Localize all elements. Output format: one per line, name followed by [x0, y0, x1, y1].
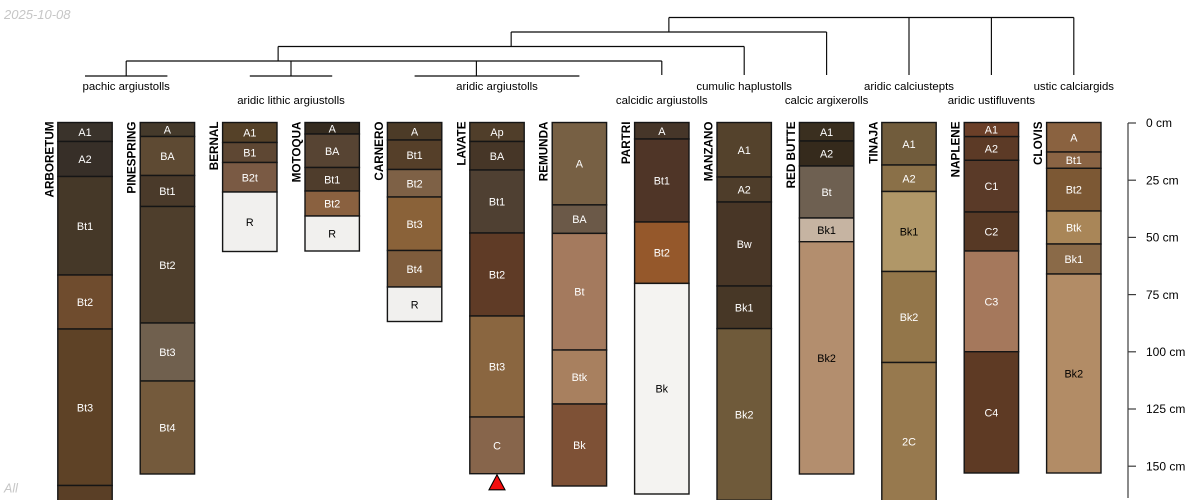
- svg-text:aridic ustifluvents: aridic ustifluvents: [948, 95, 1036, 107]
- svg-text:Bt1: Bt1: [406, 150, 422, 162]
- svg-text:LAVATE: LAVATE: [455, 121, 468, 165]
- svg-text:Bt3: Bt3: [406, 219, 422, 231]
- svg-text:A2: A2: [985, 143, 998, 155]
- svg-text:A2: A2: [902, 173, 915, 185]
- svg-text:MANZANO: MANZANO: [703, 122, 716, 182]
- svg-text:BERNAL: BERNAL: [208, 122, 221, 171]
- svg-text:Bk1: Bk1: [735, 302, 754, 314]
- svg-text:BA: BA: [325, 146, 340, 158]
- svg-text:A: A: [576, 159, 584, 171]
- svg-text:150 cm: 150 cm: [1146, 459, 1185, 473]
- svg-text:Bt1: Bt1: [77, 221, 93, 233]
- svg-text:A: A: [658, 126, 666, 138]
- svg-text:C4: C4: [984, 407, 998, 419]
- svg-text:Bw: Bw: [737, 239, 752, 251]
- svg-text:Bt1: Bt1: [654, 176, 670, 188]
- svg-text:125 cm: 125 cm: [1146, 402, 1185, 416]
- svg-text:25 cm: 25 cm: [1146, 173, 1179, 187]
- svg-text:Bk: Bk: [655, 384, 668, 396]
- svg-text:Bt2: Bt2: [324, 199, 340, 211]
- svg-text:A: A: [1070, 132, 1078, 144]
- svg-text:ARBORETUM: ARBORETUM: [43, 122, 56, 198]
- svg-text:R: R: [246, 217, 254, 229]
- svg-text:B2t: B2t: [242, 172, 258, 184]
- svg-text:A: A: [411, 126, 419, 138]
- svg-text:A1: A1: [78, 127, 91, 139]
- svg-text:A1: A1: [820, 127, 833, 139]
- svg-text:calcic argixerolls: calcic argixerolls: [785, 95, 869, 107]
- svg-text:Bt3: Bt3: [489, 362, 505, 374]
- svg-text:Bk2: Bk2: [735, 409, 754, 421]
- svg-text:Bt1: Bt1: [1066, 155, 1082, 167]
- svg-text:Bk1: Bk1: [817, 225, 836, 237]
- svg-text:MOTOQUA: MOTOQUA: [291, 121, 304, 182]
- svg-text:Ap: Ap: [490, 127, 503, 139]
- svg-text:Bk2: Bk2: [900, 312, 919, 324]
- svg-text:Bt1: Bt1: [489, 197, 505, 209]
- svg-text:Bt1: Bt1: [324, 174, 340, 186]
- svg-text:C: C: [493, 440, 501, 452]
- svg-text:A1: A1: [902, 139, 915, 151]
- svg-text:0 cm: 0 cm: [1146, 116, 1172, 130]
- svg-text:pachic argiustolls: pachic argiustolls: [83, 81, 171, 93]
- svg-text:Bt2: Bt2: [654, 248, 670, 260]
- svg-text:A2: A2: [820, 149, 833, 161]
- svg-text:50 cm: 50 cm: [1146, 231, 1179, 245]
- svg-text:A2: A2: [78, 154, 91, 166]
- svg-text:CLOVIS: CLOVIS: [1032, 121, 1045, 165]
- svg-text:ustic calciargids: ustic calciargids: [1034, 81, 1115, 93]
- svg-text:aridic argiustolls: aridic argiustolls: [456, 81, 538, 93]
- svg-text:REMUNDA: REMUNDA: [538, 121, 551, 181]
- svg-text:Bt4: Bt4: [159, 423, 175, 435]
- svg-text:100 cm: 100 cm: [1146, 345, 1185, 359]
- svg-text:C1: C1: [984, 181, 998, 193]
- svg-text:75 cm: 75 cm: [1146, 288, 1179, 302]
- svg-text:A1: A1: [985, 125, 998, 137]
- svg-text:PINESPRING: PINESPRING: [126, 122, 139, 194]
- svg-text:cumulic haplustolls: cumulic haplustolls: [696, 81, 792, 93]
- svg-text:Bt2: Bt2: [77, 297, 93, 309]
- svg-text:A2: A2: [738, 185, 751, 197]
- svg-text:A1: A1: [738, 145, 751, 157]
- svg-text:Bt1: Bt1: [159, 186, 175, 198]
- svg-text:R: R: [411, 299, 419, 311]
- svg-text:PARTRI: PARTRI: [620, 122, 633, 165]
- svg-text:Bt4: Bt4: [406, 264, 422, 276]
- svg-text:Bk: Bk: [573, 440, 586, 452]
- svg-text:Bt2: Bt2: [406, 178, 422, 190]
- svg-text:Bt2: Bt2: [159, 260, 175, 272]
- svg-text:TINAJA: TINAJA: [867, 121, 880, 164]
- svg-text:BA: BA: [572, 214, 587, 226]
- svg-text:Bk1: Bk1: [900, 227, 919, 239]
- svg-text:Bt3: Bt3: [159, 347, 175, 359]
- svg-text:aridic calciustepts: aridic calciustepts: [864, 81, 954, 93]
- svg-text:NAPLENE: NAPLENE: [950, 121, 963, 177]
- svg-text:aridic lithic argiustolls: aridic lithic argiustolls: [237, 95, 345, 107]
- svg-text:BA: BA: [490, 151, 505, 163]
- svg-text:C2: C2: [984, 227, 998, 239]
- svg-text:calcidic argiustolls: calcidic argiustolls: [616, 95, 708, 107]
- svg-text:Btk: Btk: [1066, 223, 1082, 235]
- svg-text:Bt: Bt: [821, 187, 831, 199]
- svg-text:A: A: [164, 125, 172, 137]
- svg-text:Bt2: Bt2: [1066, 185, 1082, 197]
- svg-text:2C: 2C: [902, 436, 916, 448]
- svg-text:B1: B1: [243, 148, 256, 160]
- svg-text:C3: C3: [984, 296, 998, 308]
- svg-text:All: All: [3, 482, 19, 496]
- svg-text:Bt2: Bt2: [489, 270, 505, 282]
- svg-text:CARNERO: CARNERO: [373, 122, 386, 181]
- svg-text:Bk2: Bk2: [817, 353, 836, 365]
- svg-text:Bk1: Bk1: [1064, 254, 1083, 266]
- svg-text:R: R: [328, 229, 336, 241]
- svg-text:Btk: Btk: [572, 372, 588, 384]
- svg-text:BA: BA: [160, 151, 175, 163]
- svg-text:2025-10-08: 2025-10-08: [3, 7, 71, 22]
- svg-text:A1: A1: [243, 128, 256, 140]
- svg-text:Bk2: Bk2: [1064, 369, 1083, 381]
- svg-text:RED BUTTE: RED BUTTE: [785, 121, 798, 188]
- svg-text:Bt: Bt: [574, 287, 584, 299]
- svg-text:Bt3: Bt3: [77, 402, 93, 414]
